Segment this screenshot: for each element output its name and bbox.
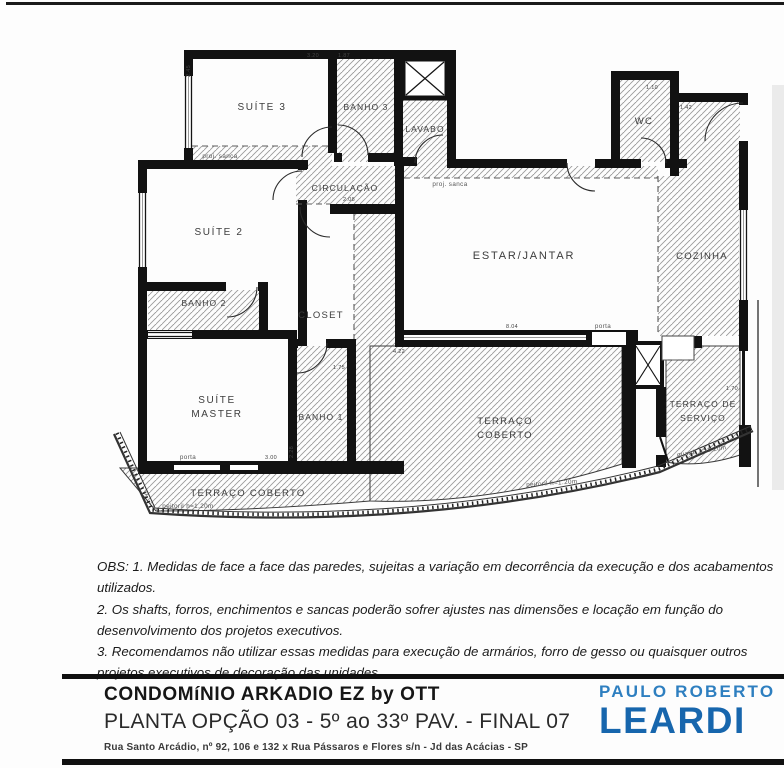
leardi-logo: PAULO ROBERTO LEARDI	[599, 683, 779, 739]
room-label-banho2: BANHO 2	[181, 298, 226, 308]
logo-leardi: LEARDI	[599, 702, 779, 739]
dim-187: 1.87	[338, 53, 350, 59]
room-label-estar-jantar: ESTAR/JANTAR	[473, 250, 575, 262]
floor-plan: SUÍTE 3 BANHO 3 LAVABO WC CIRCULAÇÃO SUÍ…	[0, 0, 784, 556]
room-label-circulacao: CIRCULAÇÃO	[312, 183, 379, 193]
annotation-proj-sanca-2: proj. sanca	[432, 181, 467, 188]
dim-110: 1.10	[646, 85, 658, 91]
dim-228: 2.28	[289, 446, 295, 458]
dim-245: 2.45	[186, 65, 192, 77]
annotation-porta-1: porta	[595, 323, 611, 330]
obs-notes: OBS: 1. Medidas de face a face das pared…	[97, 556, 784, 684]
annotation-porta-2: porta	[180, 454, 196, 461]
room-label-banho3: BANHO 3	[343, 102, 388, 112]
room-label-terraco-1: TERRAÇO	[477, 416, 533, 427]
room-label-terraco-strip: TERRAÇO COBERTO	[190, 488, 305, 499]
room-banho1-floor	[292, 346, 354, 462]
footer-bottom-rule	[62, 759, 784, 765]
room-label-closet: CLOSET	[298, 310, 344, 321]
room-banho2-floor	[148, 290, 260, 330]
room-label-suite2: SUÍTE 2	[195, 225, 244, 238]
footer-top-rule	[62, 674, 784, 679]
plan-option-subtitle: PLANTA OPÇÃO 03 - 5º ao 33º PAV. - FINAL…	[104, 710, 570, 734]
dim-170: 1.70	[726, 386, 738, 392]
page-top-rule	[6, 2, 784, 5]
logo-paulo-roberto: PAULO ROBERTO	[599, 683, 779, 700]
obs-note-2: 2. Os shafts, forros, enchimentos e sanc…	[97, 599, 784, 642]
annotation-peitoril-1: peitoril h=1.20m	[162, 503, 213, 510]
dim-142: 1.42	[680, 105, 692, 111]
condo-title: CONDOMíNIO ARKADIO EZ by OTT	[104, 684, 440, 706]
address-line: Rua Santo Arcádio, nº 92, 106 e 132 x Ru…	[104, 742, 528, 753]
room-label-suite-master-1: SUÍTE	[198, 393, 235, 406]
dim-320: 3.20	[307, 53, 319, 59]
annotation-proj-sanca-1: proj. sanca	[202, 153, 237, 160]
room-label-banho1: BANHO 1	[298, 412, 343, 422]
dim-208: 2.08	[343, 197, 355, 203]
room-label-suite3: SUÍTE 3	[238, 100, 287, 113]
dim-175: 1.75	[333, 365, 345, 371]
annotation-c-mark: c	[144, 490, 148, 497]
scan-edge	[772, 85, 784, 490]
dim-804: 8.04	[506, 324, 518, 330]
dim-300: 3.00	[265, 455, 277, 461]
room-label-lavabo: LAVABO	[405, 124, 444, 134]
room-label-wc: WC	[635, 116, 653, 127]
room-label-servico-1: TERRAÇO DE	[670, 399, 737, 409]
obs-note-1: OBS: 1. Medidas de face a face das pared…	[97, 556, 784, 599]
room-label-cozinha: COZINHA	[676, 251, 728, 262]
room-label-servico-2: SERVIÇO	[680, 413, 726, 423]
duct-box	[662, 336, 694, 360]
room-label-suite-master-2: MASTER	[191, 409, 242, 420]
dim-422: 4.22	[393, 349, 405, 355]
room-label-terraco-2: COBERTO	[477, 430, 533, 441]
